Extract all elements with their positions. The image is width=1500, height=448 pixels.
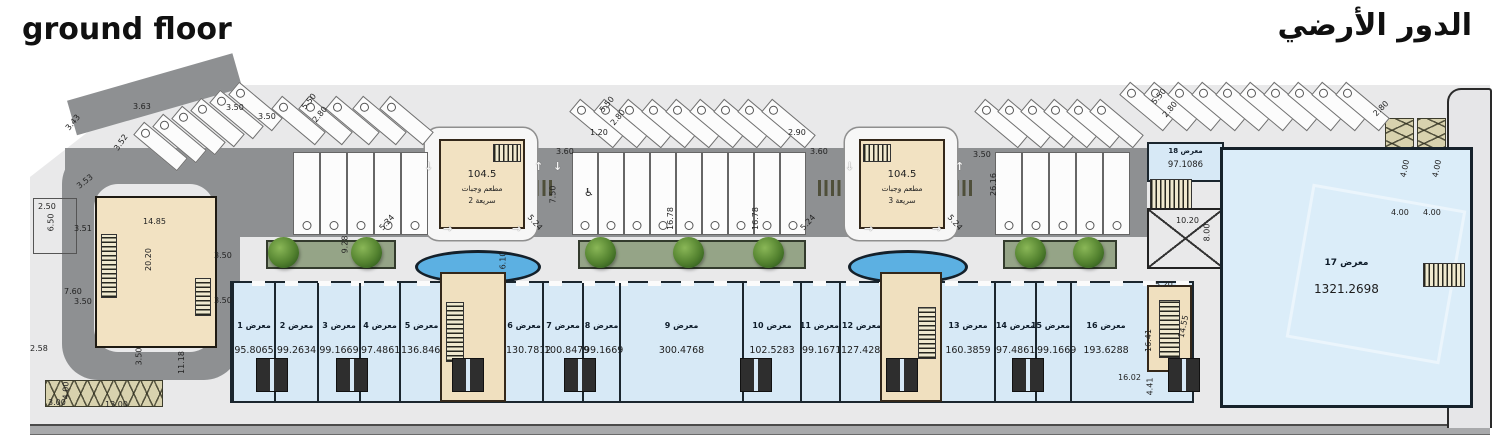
- dimension-label: 16.41: [1144, 329, 1153, 352]
- stall-number-badge: [196, 103, 209, 116]
- stall-number-badge: [1058, 221, 1067, 230]
- stall-number-badge: [329, 221, 338, 230]
- parking-stall: [702, 152, 728, 235]
- dimension-label: 9.28: [340, 236, 349, 254]
- dimension-label: 8.00: [1202, 224, 1211, 242]
- road-arrow-icon: →: [932, 222, 941, 235]
- shop-unit-label: معرض 18: [1149, 147, 1222, 155]
- road-arrow-icon: ↑: [534, 160, 543, 173]
- stall-number-badge: [1072, 104, 1085, 117]
- dimension-label: 14.85: [143, 217, 166, 226]
- dimension-label: 1.20: [590, 128, 608, 137]
- dimension-label: 6.10: [498, 252, 507, 270]
- restaurant-label-line1: مطعم وجبات: [861, 184, 943, 193]
- shop-unit-area: 127.4287: [841, 345, 882, 356]
- dimension-label: 16.02: [1118, 373, 1141, 382]
- restaurant-label-line1: مطعم وجبات: [441, 184, 523, 193]
- stall-number-badge: [737, 221, 746, 230]
- dimension-label: 2.90: [788, 128, 806, 137]
- tree-icon: [1073, 237, 1104, 268]
- wc-block: [1012, 358, 1044, 392]
- stall-number-badge: [1112, 221, 1121, 230]
- parking-stall: [293, 152, 320, 235]
- shop-unit-area: 97.4861: [996, 345, 1035, 356]
- shop-unit-area: 136.8465: [401, 345, 442, 356]
- dimension-label: 16.78: [666, 207, 675, 230]
- dimension-label: 4.00: [1423, 208, 1441, 217]
- stall-number-badge: [607, 221, 616, 230]
- stall-number-badge: [410, 221, 419, 230]
- shop-unit-16: معرض 16193.6288: [1070, 283, 1140, 401]
- dimension-label: 4.00: [1391, 208, 1409, 217]
- stall-number-badge: [767, 104, 780, 117]
- stall-number-badge: [385, 101, 398, 114]
- shop-unit-label: معرض 9: [621, 321, 742, 330]
- stall-number-badge: [633, 221, 642, 230]
- dimension-label: 7.60: [64, 287, 82, 296]
- shop-unit-label: معرض 8: [584, 321, 619, 330]
- shop-unit-label: معرض 7: [544, 321, 582, 330]
- shop-unit-area: 97.4861: [361, 345, 399, 356]
- tree-icon: [585, 237, 616, 268]
- shop-unit-label: معرض 15: [1037, 321, 1070, 330]
- shop-unit-area: 130.7812: [506, 345, 542, 356]
- dimension-label: 3.60: [556, 147, 574, 156]
- street-band: [30, 424, 1490, 435]
- shop-unit-label: معرض 13: [942, 321, 994, 330]
- stairs-icon: [101, 234, 117, 298]
- dimension-label: 3.50: [258, 112, 276, 121]
- shop-unit-label: معرض 11: [802, 321, 839, 330]
- stall-number-badge: [671, 104, 684, 117]
- shop-row: معرض 195.8065معرض 299.2634معرض 399.1669م…: [230, 281, 1194, 403]
- dimension-label: 3.60: [810, 147, 828, 156]
- shop-unit-area: 99.1669: [584, 345, 619, 356]
- dimension-label: 10.20: [1176, 216, 1199, 225]
- dimension-label: 13.00: [105, 400, 128, 409]
- stall-number-badge: [711, 221, 720, 230]
- dimension-label: 3.63: [133, 102, 151, 111]
- shop-unit-6: معرض 6130.7812: [504, 283, 542, 401]
- restaurant-area: 104.5: [441, 169, 523, 180]
- accessible-parking-icon: ♿: [584, 186, 594, 199]
- parking-stall: [1076, 152, 1103, 235]
- stall-number-badge: [1085, 221, 1094, 230]
- floor-plan: 104.5 مطعم وجبات سريعة 2 104.5 مطعم وجبا…: [0, 0, 1500, 448]
- stairs-icon: [918, 307, 936, 359]
- stall-number-badge: [581, 221, 590, 230]
- tree-icon: [1015, 237, 1046, 268]
- shop-unit-area: 100.8479: [544, 345, 582, 356]
- escalator-icon: [1159, 300, 1180, 358]
- stall-number-badge: [1197, 87, 1210, 100]
- parking-stall: [347, 152, 374, 235]
- dimension-label: 3.51: [74, 224, 92, 233]
- stall-number-badge: [302, 221, 311, 230]
- shop-unit-label: معرض 14: [996, 321, 1035, 330]
- shop-unit-area: 95.8065: [234, 345, 274, 356]
- stall-number-badge: [331, 101, 344, 114]
- wc-block: [886, 358, 918, 392]
- tree-icon: [351, 237, 382, 268]
- shop-unit-label: معرض 1: [234, 321, 274, 330]
- stall-number-badge: [177, 111, 190, 124]
- stall-number-badge: [139, 127, 152, 140]
- dimension-label: 3.50: [134, 348, 143, 366]
- stairs-icon: [446, 302, 464, 362]
- wc-block: [740, 358, 772, 392]
- stall-number-badge: [1341, 87, 1354, 100]
- shop-unit-label: معرض 6: [506, 321, 542, 330]
- shop-unit-label: معرض 12: [841, 321, 882, 330]
- stall-number-badge: [1317, 87, 1330, 100]
- dimension-label: 4.41: [1145, 378, 1154, 396]
- dimension-label: 20.20: [144, 248, 153, 271]
- shop-unit-area: 97.1086: [1149, 160, 1222, 170]
- stall-number-badge: [647, 104, 660, 117]
- dimension-label: 3.50: [214, 251, 232, 260]
- stall-number-badge: [743, 104, 756, 117]
- shop-unit-label: معرض 16: [1072, 321, 1140, 330]
- road-arrow-icon: →: [864, 222, 873, 235]
- stall-number-badge: [277, 101, 290, 114]
- parking-stall: [1049, 152, 1076, 235]
- wc-block: [256, 358, 288, 392]
- shop-unit-label: معرض 4: [361, 321, 399, 330]
- parking-stall: [320, 152, 347, 235]
- stall-number-badge: [1031, 221, 1040, 230]
- shop-unit-area: 300.4768: [621, 345, 742, 356]
- dimension-label: 16.78: [751, 207, 760, 230]
- shop-unit-area: 99.1669: [319, 345, 359, 356]
- dimension-label: 2.50: [38, 202, 56, 211]
- dimension-label: 3.50: [214, 296, 232, 305]
- parking-stall: [624, 152, 650, 235]
- stall-number-badge: [719, 104, 732, 117]
- stall-number-badge: [1269, 87, 1282, 100]
- road-arrow-icon: ↓: [845, 160, 854, 173]
- stall-number-badge: [695, 104, 708, 117]
- wc-block: [336, 358, 368, 392]
- floor-plan-canvas: ground floor الدور الأرضي 104.5 مطعم وجب…: [0, 0, 1500, 448]
- stall-number-badge: [980, 104, 993, 117]
- dimension-label: 3.50: [973, 150, 991, 159]
- tree-icon: [673, 237, 704, 268]
- stairs-icon: [493, 144, 521, 162]
- shop-unit-area: 99.1669: [1037, 345, 1070, 356]
- stall-number-badge: [1026, 104, 1039, 117]
- stall-number-badge: [1293, 87, 1306, 100]
- stairs-icon: [195, 278, 211, 316]
- shop-unit-area: 193.6288: [1072, 345, 1140, 356]
- dimension-label: 6.50: [46, 214, 55, 232]
- stall-number-badge: [1049, 104, 1062, 117]
- parking-stall: [1022, 152, 1049, 235]
- shop-unit-18: معرض 18 97.1086: [1147, 142, 1224, 182]
- shop-unit-area: 160.3859: [942, 345, 994, 356]
- restaurant-label-line2: سريعة 2: [441, 196, 523, 205]
- stall-number-badge: [789, 221, 798, 230]
- stall-number-badge: [1221, 87, 1234, 100]
- shop-unit-label: معرض 5: [401, 321, 442, 330]
- restaurant-building-2: 104.5 مطعم وجبات سريعة 3: [859, 139, 945, 229]
- parking-stall: [995, 152, 1022, 235]
- stall-number-badge: [763, 221, 772, 230]
- shop-unit-9: معرض 9300.4768: [619, 283, 742, 401]
- stall-number-badge: [1245, 87, 1258, 100]
- shop-unit-area: 102.5283: [744, 345, 800, 356]
- road-arrow-icon: →: [443, 222, 452, 235]
- parking-stall: [676, 152, 702, 235]
- wc-block: [452, 358, 484, 392]
- parking-stall: [1103, 152, 1130, 235]
- dimension-label: 2.58: [30, 344, 48, 353]
- shop-unit-11: معرض 1199.1671: [800, 283, 839, 401]
- stall-number-badge: [1003, 104, 1016, 117]
- stairs-icon: [863, 144, 891, 162]
- stall-number-badge: [1004, 221, 1013, 230]
- wc-block: [1168, 358, 1200, 392]
- shop-unit-label: معرض 10: [744, 321, 800, 330]
- road-arrow-icon: ↓: [424, 160, 433, 173]
- stall-number-badge: [358, 101, 371, 114]
- stall-number-badge: [1173, 87, 1186, 100]
- restaurant-building-1: 104.5 مطعم وجبات سريعة 2: [439, 139, 525, 229]
- tree-icon: [753, 237, 784, 268]
- dimension-label: 3.50: [226, 103, 244, 112]
- stall-number-badge: [685, 221, 694, 230]
- stall-number-badge: [1095, 104, 1108, 117]
- shop-unit-5: معرض 5136.8465: [399, 283, 442, 401]
- parking-stall: [598, 152, 624, 235]
- dimension-label: 26.16: [989, 173, 998, 196]
- shop-unit-label: معرض 3: [319, 321, 359, 330]
- stairs-icon: [1150, 179, 1192, 209]
- road-arrow-icon: ↑: [955, 160, 964, 173]
- road-arrow-icon: →: [512, 222, 521, 235]
- shop-unit-label: معرض 2: [276, 321, 317, 330]
- stall-number-badge: [234, 87, 247, 100]
- shop-unit-13: معرض 13160.3859: [940, 283, 994, 401]
- shop-unit-12: معرض 12127.4287: [839, 283, 882, 401]
- dimension-label: 11.18: [177, 351, 186, 374]
- road-arrow-icon: ↓: [553, 160, 562, 173]
- dimension-label: 7.50: [548, 186, 557, 204]
- dimension-label: 4.00: [61, 382, 70, 400]
- stall-number-badge: [1125, 87, 1138, 100]
- stall-number-badge: [575, 104, 588, 117]
- stall-number-badge: [356, 221, 365, 230]
- stairs-icon: [1423, 263, 1465, 287]
- dimension-label: 5.20: [1155, 280, 1173, 289]
- shop-unit-area: 99.1671: [802, 345, 839, 356]
- wc-block: [564, 358, 596, 392]
- shop-unit-area: 99.2634: [276, 345, 317, 356]
- dimension-label: 3.50: [74, 297, 92, 306]
- restaurant-area: 104.5: [861, 169, 943, 180]
- stall-number-badge: [158, 119, 171, 132]
- tree-icon: [268, 237, 299, 268]
- restaurant-label-line2: سريعة 3: [861, 196, 943, 205]
